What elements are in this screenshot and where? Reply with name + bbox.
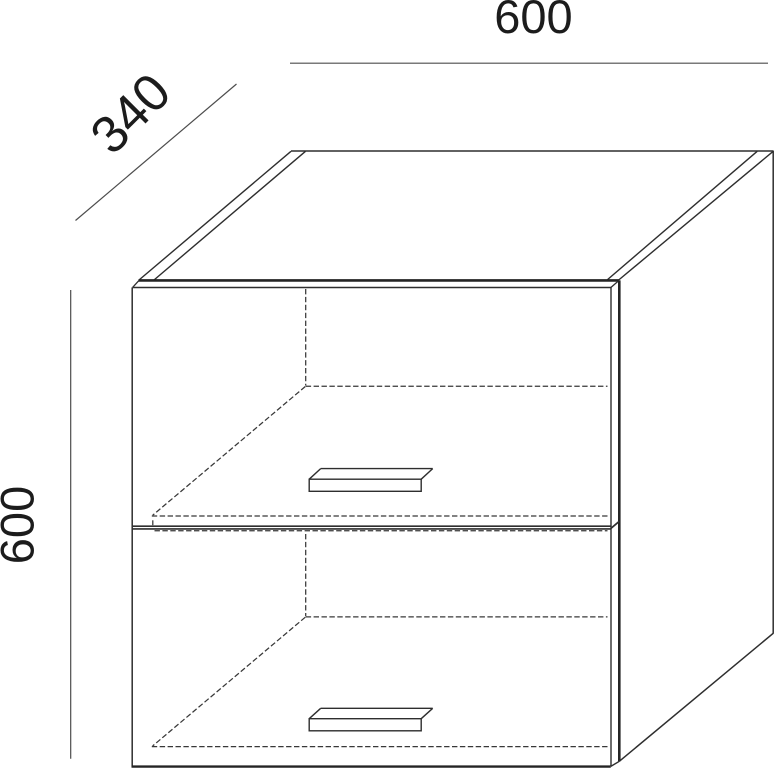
svg-text:340: 340: [80, 63, 182, 165]
svg-text:600: 600: [0, 486, 44, 564]
svg-text:600: 600: [494, 0, 572, 43]
